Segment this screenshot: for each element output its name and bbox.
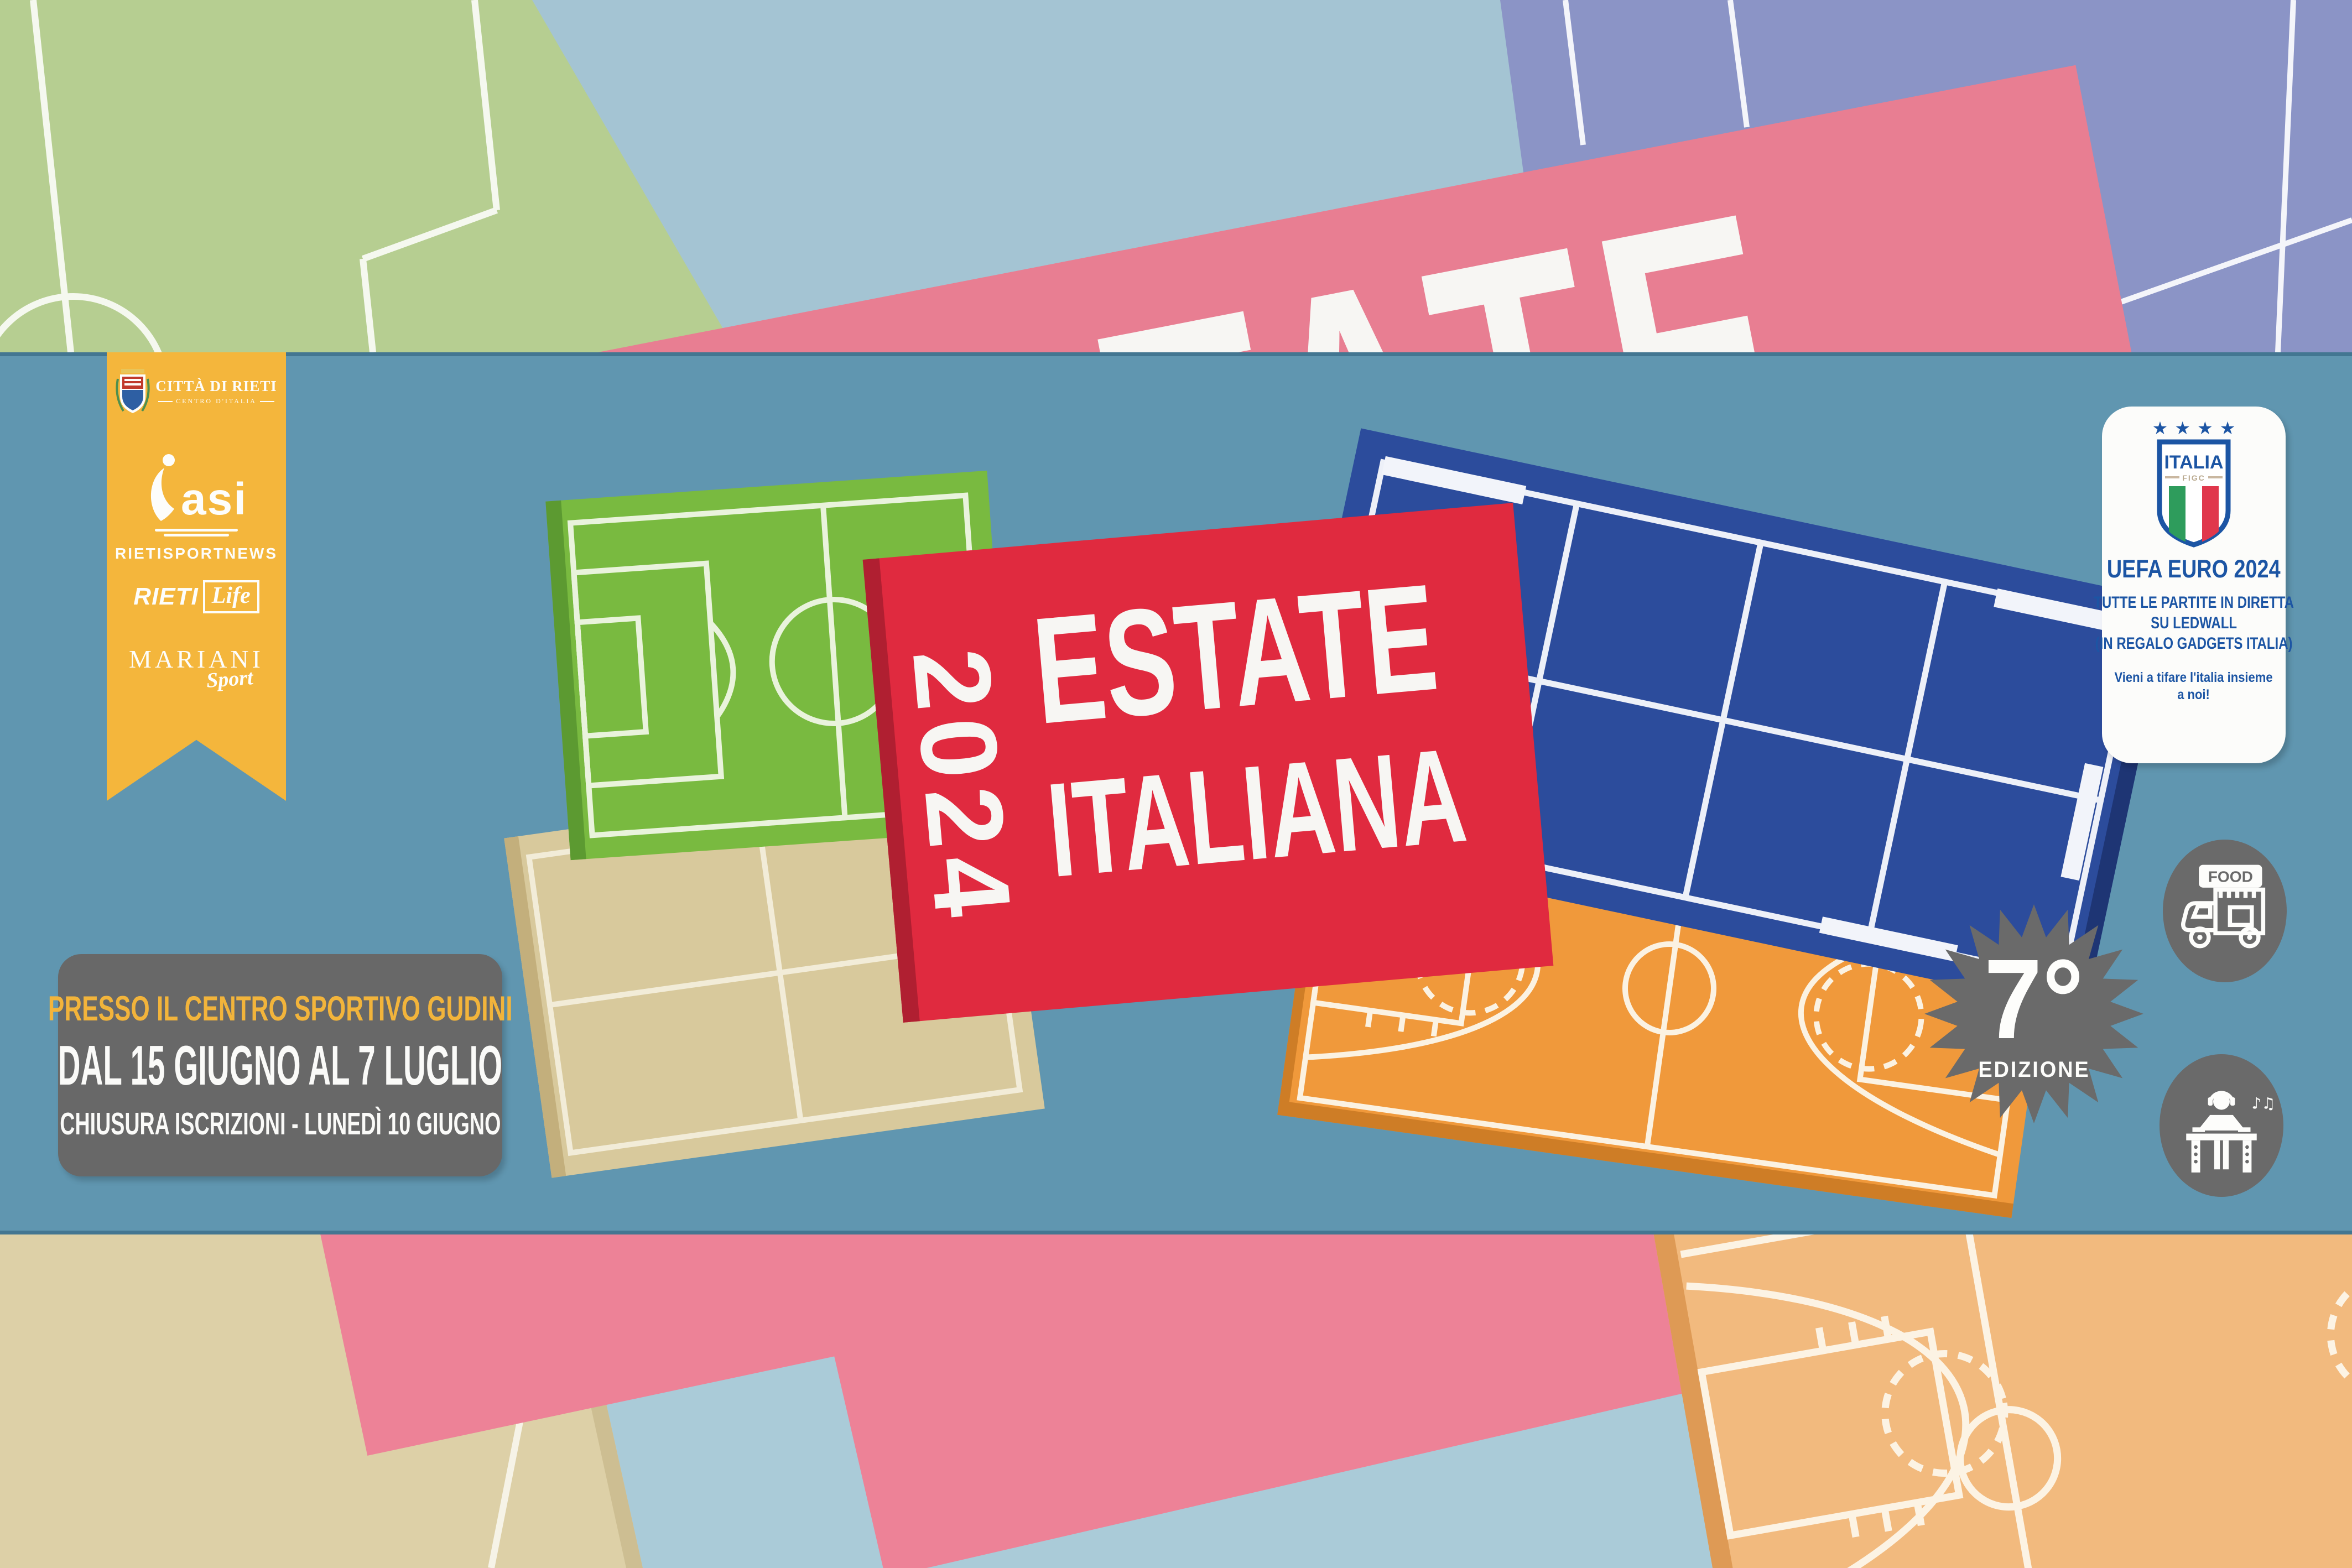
title-line-estate: ESTATE bbox=[1028, 556, 1470, 749]
uefa-note-1: Vieni a tifare l'italia insieme bbox=[2115, 669, 2273, 686]
info-venue: PRESSO IL CENTRO SPORTIVO GUDINI bbox=[48, 989, 513, 1029]
uefa-euro-box: ★★★★ ITALIA FIGC UEFA EURO 2024 TUTTE LE… bbox=[2102, 407, 2286, 763]
sponsor-rieti-life: RIETI Life bbox=[107, 580, 286, 613]
asi-wordmark: asi bbox=[181, 477, 247, 522]
title-card: 2024 ESTATE ITALIANA bbox=[863, 503, 1554, 1023]
food-truck-icon: FOOD bbox=[2167, 856, 2283, 966]
uefa-line-3: (IN REGALO GADGETS ITALIA) bbox=[2094, 633, 2294, 654]
event-info-box: PRESSO IL CENTRO SPORTIVO GUDINI DAL 15 … bbox=[58, 954, 502, 1176]
asi-swoosh-icon bbox=[145, 454, 178, 522]
sponsor-rietisportnews: RIETISPORTNEWS bbox=[107, 545, 286, 562]
edition-number: 7° bbox=[1984, 945, 2084, 1053]
edition-badge: 7° EDIZIONE bbox=[1923, 903, 2145, 1124]
sponsor-citta-sub: CENTRO D'ITALIA bbox=[155, 397, 277, 405]
edition-label: EDIZIONE bbox=[1978, 1058, 2090, 1082]
food-sign-text: FOOD bbox=[2208, 868, 2253, 885]
uefa-line-2: SU LEDWALL bbox=[2094, 613, 2294, 633]
sponsor-asi: asi bbox=[107, 454, 286, 536]
sponsor-ribbon: CITTÀ DI RIETI CENTRO D'ITALIA asi RIETI… bbox=[107, 352, 286, 801]
sponsor-citta-di-rieti: CITTÀ DI RIETI CENTRO D'ITALIA bbox=[107, 368, 286, 415]
info-deadline: CHIUSURA ISCRIZIONI - LUNEDÌ 10 GIUGNO bbox=[60, 1106, 501, 1142]
food-truck-badge: FOOD bbox=[2163, 840, 2287, 982]
mariani-sub: Sport bbox=[205, 665, 253, 693]
dj-icon: ♪♫ bbox=[2163, 1069, 2280, 1182]
uefa-title: UEFA EURO 2024 bbox=[2107, 555, 2281, 584]
uefa-note-2: a noi! bbox=[2115, 686, 2273, 704]
dj-badge: ♪♫ bbox=[2160, 1054, 2283, 1197]
sponsor-mariani-sport: MARIANI Sport bbox=[107, 644, 286, 691]
shield-title: ITALIA bbox=[2164, 452, 2223, 473]
asi-subtext-bars bbox=[155, 527, 238, 536]
info-dates: DAL 15 GIUGNO AL 7 LUGLIO bbox=[58, 1034, 502, 1098]
rieti-life-life: Life bbox=[203, 580, 259, 613]
shield-sub: FIGC bbox=[2182, 473, 2205, 482]
sponsor-citta-name: CITTÀ DI RIETI bbox=[155, 378, 277, 395]
title-line-italiana: ITALIANA bbox=[1043, 725, 1471, 900]
poster-canvas: ESTATE bbox=[0, 0, 2352, 1568]
figc-stars: ★★★★ bbox=[2146, 418, 2242, 439]
rieti-life-rieti: RIETI bbox=[133, 583, 198, 611]
uefa-line-1: TUTTE LE PARTITE IN DIRETTA bbox=[2094, 592, 2294, 613]
figc-italia-shield-icon: ITALIA FIGC bbox=[2155, 439, 2233, 549]
music-notes: ♪♫ bbox=[2251, 1094, 2275, 1112]
citta-di-rieti-crest-icon bbox=[116, 368, 150, 415]
